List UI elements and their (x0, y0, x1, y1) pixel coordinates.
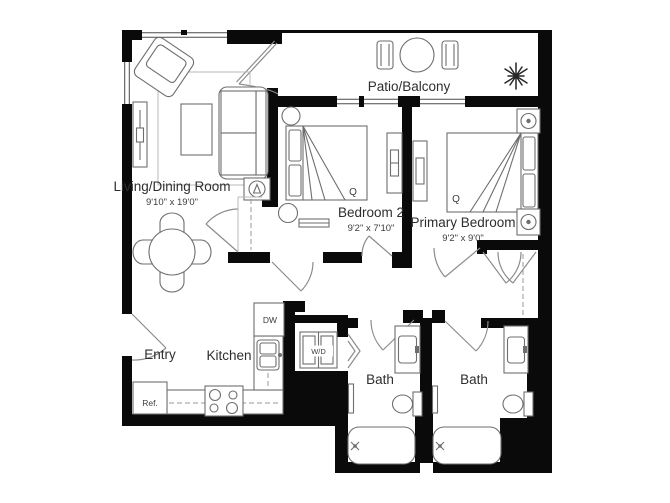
living-room-left-window (122, 62, 132, 104)
entry-label: Entry (144, 347, 176, 362)
living-dining-room-label: Living/Dining Room (113, 179, 230, 194)
towel-bar-icon (349, 384, 354, 413)
vanity-sink-icon (395, 326, 420, 373)
primary-bedroom-label: Primary Bedroom (410, 215, 515, 230)
armchair-icon (132, 35, 196, 99)
stool-icon (279, 204, 298, 223)
plant-icon (505, 63, 527, 89)
kitchen-sink-icon (257, 340, 282, 370)
bath1-fixtures (348, 326, 422, 464)
bedroom2-window-1 (337, 96, 359, 107)
washer-dryer-label: W/D (311, 347, 326, 356)
desk-icon (299, 219, 329, 227)
dishwasher-label: DW (263, 315, 277, 325)
refrigerator-label: Ref. (142, 398, 158, 408)
floor-plan-canvas: Living/Dining Room 9'10" x 19'0" Patio/B… (0, 0, 670, 503)
hallway-door (272, 262, 313, 291)
hall-closet-door (206, 209, 238, 252)
speaker-icon (517, 209, 540, 235)
bath1-label: Bath (366, 372, 394, 387)
primary-bed-icon (447, 133, 538, 212)
primary-bed-size-label: Q (452, 194, 460, 205)
dresser-icon (413, 141, 427, 201)
nightstand-icon (282, 107, 300, 125)
bedroom2-label: Bedroom 2 (338, 205, 404, 220)
primary-closet-doors (483, 252, 536, 316)
bathtub-icon (348, 427, 415, 464)
primary-bedroom-window (420, 96, 465, 107)
bedroom2-closet (238, 197, 262, 252)
bath2-label: Bath (460, 372, 488, 387)
stove-icon (205, 386, 243, 416)
dining-table-icon (133, 213, 211, 292)
primary-bedroom-dims: 9'2" x 9'0" (442, 233, 484, 244)
living-room-top-window (142, 30, 227, 40)
bathtub-icon (433, 427, 501, 464)
bedroom2-door (362, 236, 392, 256)
vanity-sink-icon (504, 326, 528, 373)
toilet-icon (503, 392, 533, 416)
dresser-icon (387, 133, 402, 193)
patio-door (237, 41, 279, 94)
speaker-icon (517, 109, 540, 133)
primary-bedroom-door (434, 248, 480, 277)
patio-balcony-label: Patio/Balcony (368, 79, 451, 94)
sofa-icon (219, 87, 268, 179)
living-dining-room-dims: 9'10" x 19'0" (146, 197, 198, 208)
bedroom2-window-2 (364, 96, 398, 107)
bedroom2-dims: 9'2" x 7'10" (348, 223, 395, 234)
floor-plan: Living/Dining Room 9'10" x 19'0" Patio/B… (0, 0, 670, 503)
patio-table-icon (377, 38, 458, 72)
towel-bar-icon (433, 386, 438, 413)
kitchen-label: Kitchen (206, 348, 251, 363)
toilet-icon (393, 392, 423, 416)
washer-dryer-bifold-door (348, 334, 360, 368)
coffee-table-icon (181, 104, 212, 155)
bedroom2-bed-size-label: Q (349, 187, 357, 198)
tv-console-icon (133, 102, 147, 167)
